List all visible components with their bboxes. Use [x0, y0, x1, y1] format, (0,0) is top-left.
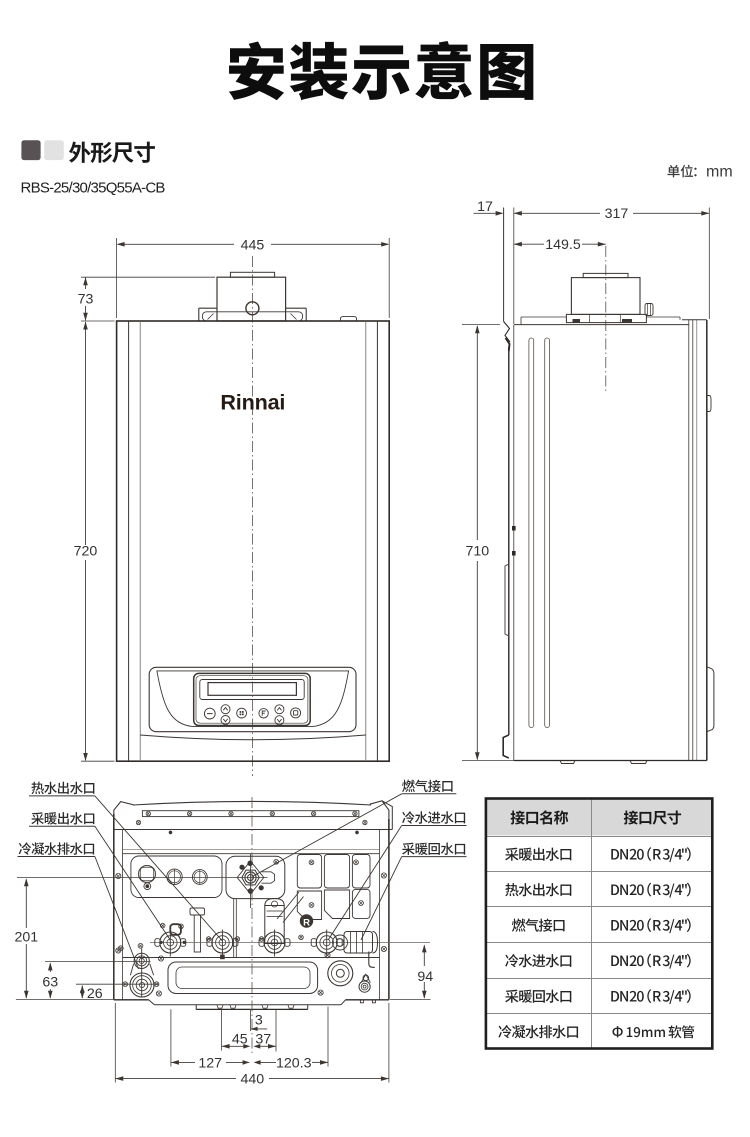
svg-text:45: 45 — [232, 1031, 248, 1047]
svg-text:R: R — [303, 917, 310, 928]
svg-text:94: 94 — [417, 969, 433, 985]
svg-text:127: 127 — [198, 1055, 222, 1071]
svg-text:63: 63 — [42, 974, 58, 990]
svg-text:440: 440 — [240, 1072, 264, 1088]
svg-text:17: 17 — [477, 199, 493, 215]
svg-text:26: 26 — [87, 986, 103, 1002]
svg-text:120.3: 120.3 — [276, 1055, 312, 1071]
svg-text:720: 720 — [74, 543, 98, 559]
svg-text:149.5: 149.5 — [545, 237, 581, 253]
svg-text:3: 3 — [255, 1013, 263, 1029]
svg-text:mm: mm — [706, 163, 733, 180]
svg-text:Rinnai: Rinnai — [220, 390, 285, 415]
svg-text:37: 37 — [255, 1031, 271, 1047]
svg-text:201: 201 — [14, 929, 38, 945]
svg-text:RBS-25/30/35Q55A-CB: RBS-25/30/35Q55A-CB — [21, 180, 166, 197]
svg-text:73: 73 — [78, 291, 94, 307]
svg-text:710: 710 — [465, 543, 489, 559]
svg-text:317: 317 — [605, 206, 629, 222]
svg-text:445: 445 — [241, 237, 265, 253]
